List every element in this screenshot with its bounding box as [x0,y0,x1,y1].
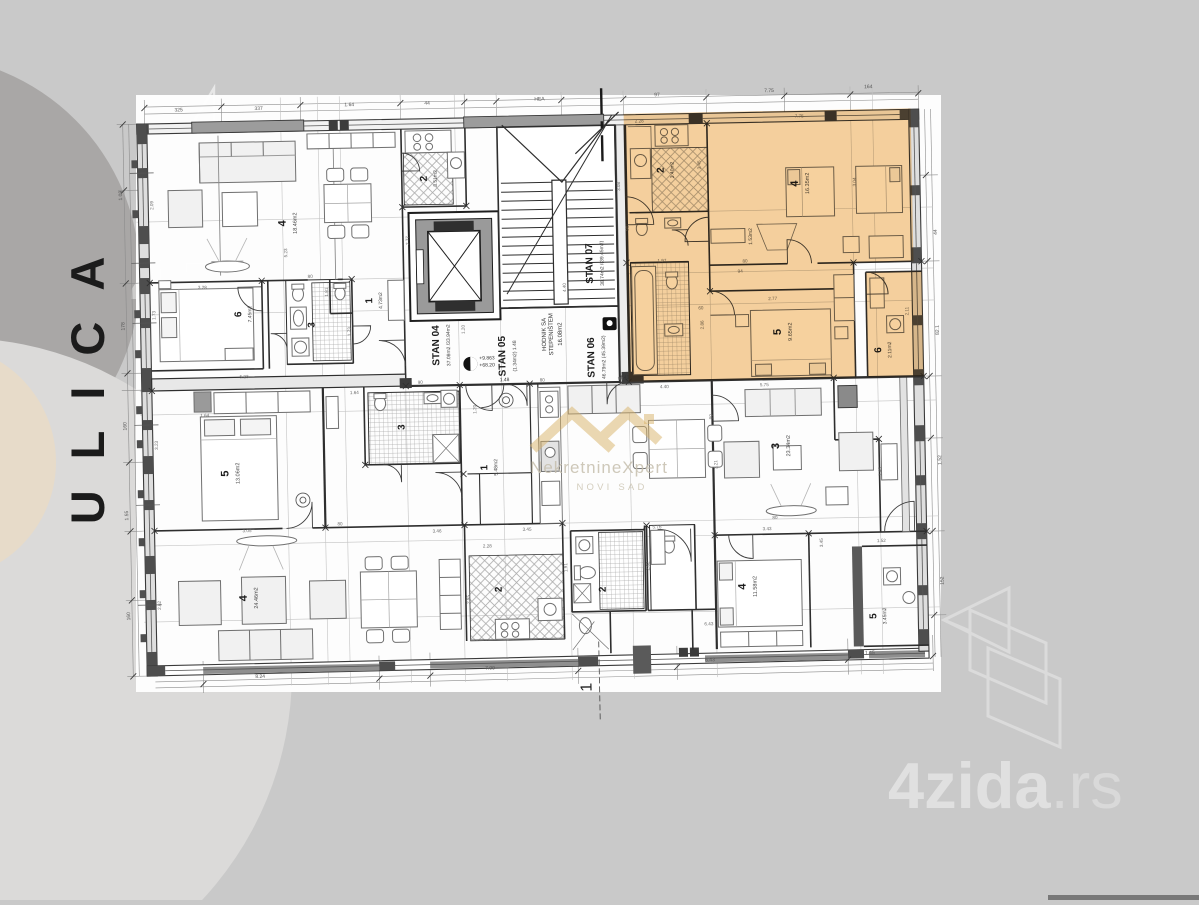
svg-text:1.52: 1.52 [877,538,886,543]
svg-text:2.62: 2.62 [157,600,162,609]
svg-text:178: 178 [120,322,126,331]
svg-text:3.45: 3.45 [819,538,824,547]
svg-text:STAN 06: STAN 06 [586,337,598,378]
svg-text:160: 160 [126,612,132,621]
svg-text:1.45: 1.45 [865,650,875,656]
svg-text:3: 3 [307,322,318,328]
svg-text:4: 4 [238,594,250,601]
svg-text:ULICA: ULICA [61,226,114,525]
svg-text:2.62: 2.62 [645,561,650,570]
svg-text:2.28: 2.28 [483,543,492,548]
svg-text:+68.20: +68.20 [479,362,495,368]
svg-text:3.43: 3.43 [763,526,772,531]
svg-text:4.40: 4.40 [660,384,669,389]
svg-text:2: 2 [494,586,505,592]
svg-text:1: 1 [364,297,375,303]
svg-text:HEA: HEA [534,96,545,102]
svg-text:37.08m2 /33.94m2: 37.08m2 /33.94m2 [446,324,453,366]
svg-text:4: 4 [277,219,289,226]
svg-text:8.24: 8.24 [255,674,265,680]
svg-text:1.20: 1.20 [472,404,477,413]
svg-text:152: 152 [940,576,946,585]
svg-text:1: 1 [479,464,490,470]
svg-text:3: 3 [397,424,408,430]
svg-text:7.00: 7.00 [485,665,495,671]
svg-text:5.76: 5.76 [652,524,661,529]
svg-text:90: 90 [418,380,424,385]
svg-text:4zida.rs: 4zida.rs [888,749,1123,822]
svg-text:6: 6 [233,311,244,317]
svg-text:4.73m2: 4.73m2 [378,292,384,309]
svg-text:+9.863: +9.863 [479,355,495,361]
svg-text:1.81: 1.81 [324,287,329,296]
svg-text:2.77: 2.77 [405,236,410,245]
svg-text:82.1: 82.1 [935,325,941,335]
svg-text:7.45m2: 7.45m2 [247,305,253,322]
svg-text:325: 325 [174,107,183,113]
svg-text:38.74m2 /(39.45m2): 38.74m2 /(39.45m2) [599,240,606,285]
svg-text:97: 97 [654,92,660,98]
svg-text:3.45: 3.45 [523,527,532,532]
svg-text:2.09: 2.09 [149,200,154,209]
svg-text:STAN 05: STAN 05 [497,335,509,376]
svg-text:1.91: 1.91 [563,563,568,572]
svg-text:5.48m2: 5.48m2 [493,459,499,476]
svg-text:3.05: 3.05 [242,528,251,533]
svg-text:23.34m2: 23.34m2 [786,435,792,457]
svg-text:1.64: 1.64 [344,102,354,108]
svg-text:80: 80 [540,377,546,382]
svg-text:160: 160 [122,422,128,431]
svg-text:46.79m2 (45.39m2): 46.79m2 (45.39m2) [601,335,608,379]
svg-text:2.95: 2.95 [466,594,471,603]
svg-text:1.64: 1.64 [350,390,359,395]
svg-text:3.21: 3.21 [713,460,718,469]
svg-text:80: 80 [772,515,778,520]
svg-text:5: 5 [219,470,231,476]
svg-text:6.43: 6.43 [705,657,715,663]
svg-text:1: 1 [579,682,596,691]
svg-text:3: 3 [770,443,782,449]
svg-text:1.55: 1.55 [124,510,130,520]
svg-text:3.46: 3.46 [433,528,442,533]
svg-text:80: 80 [337,521,343,526]
svg-text:5.23: 5.23 [283,248,288,257]
svg-text:1.20: 1.20 [461,325,466,334]
svg-text:3.23: 3.23 [154,440,159,449]
svg-text:1.09: 1.09 [118,191,124,201]
svg-text:5: 5 [868,613,879,619]
svg-text:4: 4 [737,583,749,590]
svg-text:164: 164 [864,84,873,90]
svg-text:6.43: 6.43 [704,621,713,626]
svg-text:1.48: 1.48 [500,377,510,383]
svg-text:3.28: 3.28 [198,285,207,290]
svg-text:3.08: 3.08 [616,182,621,191]
svg-text:90: 90 [708,414,713,420]
svg-text:1.52: 1.52 [937,455,943,465]
svg-text:3.45m2: 3.45m2 [882,607,888,624]
svg-text:337: 337 [254,106,263,112]
svg-text:(1.34m2) 1.48: (1.34m2) 1.48 [512,340,519,371]
svg-text:44: 44 [933,229,939,235]
svg-text:44: 44 [424,101,430,107]
svg-text:2: 2 [598,586,609,592]
svg-text:1.64: 1.64 [200,413,209,418]
svg-text:80: 80 [308,274,314,279]
svg-text:2: 2 [419,175,430,181]
svg-text:STAN 07: STAN 07 [584,243,596,284]
svg-text:1.73: 1.73 [347,327,352,336]
svg-text:3.51m2: 3.51m2 [433,170,439,187]
svg-text:NOVI SAD: NOVI SAD [577,482,648,493]
svg-text:24.46m2: 24.46m2 [254,587,260,609]
svg-text:1.73: 1.73 [151,310,156,319]
svg-text:5.23: 5.23 [240,374,249,379]
svg-text:7.75: 7.75 [764,88,774,94]
svg-text:90: 90 [618,376,624,381]
svg-text:16.08m2: 16.08m2 [558,322,564,346]
svg-text:13.06m2: 13.06m2 [235,463,241,485]
svg-text:STEPENIŠTEM: STEPENIŠTEM [547,313,555,355]
svg-text:1.45: 1.45 [877,467,882,476]
svg-text:STAN 04: STAN 04 [431,325,443,366]
svg-text:HODNIK SA: HODNIK SA [541,318,548,351]
svg-text:18.46m2: 18.46m2 [292,212,298,234]
svg-text:11.58m2: 11.58m2 [752,576,758,597]
svg-text:5.75: 5.75 [760,382,769,387]
svg-text:NekretnineXpert: NekretnineXpert [530,458,668,477]
svg-text:4.40: 4.40 [562,283,567,292]
